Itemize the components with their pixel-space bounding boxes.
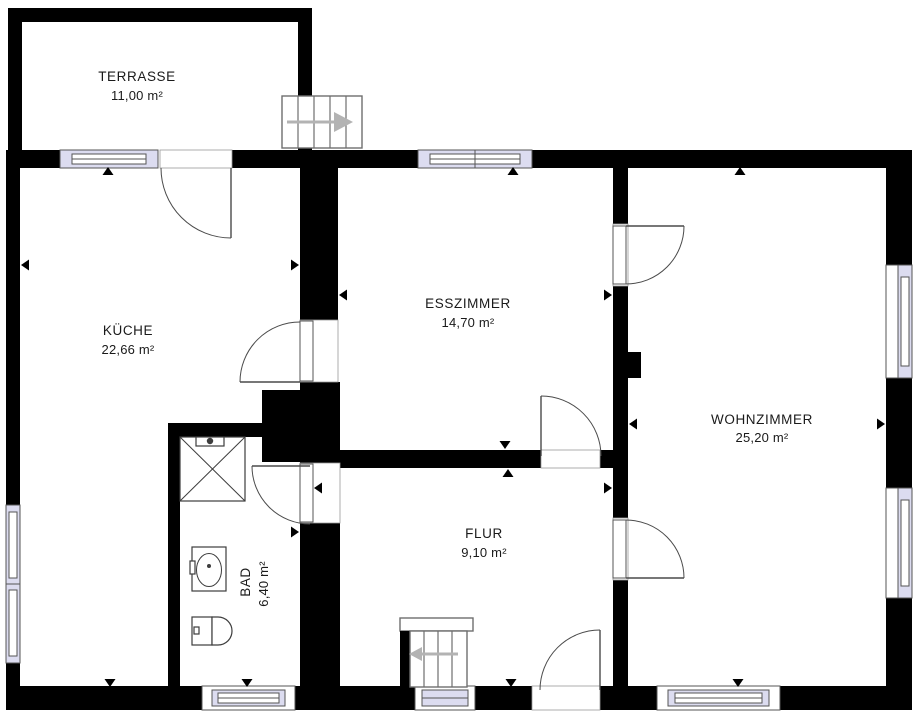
wall-segment (168, 423, 300, 437)
wall-segment (532, 150, 912, 168)
wall-segment (6, 150, 20, 505)
window-kueche-top (60, 150, 158, 168)
marker-up (735, 167, 746, 175)
marker-down (500, 441, 511, 449)
shower-icon (180, 437, 245, 501)
door-kueche-esszimmer (240, 320, 338, 382)
marker-right (604, 290, 612, 301)
floor-plan: TERRASSE 11,00 m² KÜCHE 22,66 m² ESSZIMM… (0, 0, 920, 713)
wall-segment (600, 686, 657, 710)
wall-segment (338, 450, 541, 468)
wall-segment (168, 437, 180, 686)
label-bad: BAD (238, 567, 253, 597)
wall-segment (8, 8, 312, 22)
label-kueche-area: 22,66 m² (102, 342, 155, 357)
wall-pilaster (625, 352, 641, 378)
label-terrasse: TERRASSE (98, 69, 176, 84)
dimension-markers (21, 167, 885, 687)
label-esszimmer: ESSZIMMER (425, 296, 511, 311)
marker-left (629, 419, 637, 430)
wall-segment (886, 378, 912, 488)
label-wohnzimmer: WOHNZIMMER (711, 412, 813, 427)
marker-down (506, 679, 517, 687)
marker-left (339, 290, 347, 301)
marker-right (877, 419, 885, 430)
wall-segment (600, 450, 613, 468)
wall-segment (300, 523, 340, 686)
wall-segment (613, 578, 628, 686)
door-terrasse-kueche (160, 150, 232, 238)
marker-right (291, 260, 299, 271)
window-esszimmer-top (418, 150, 532, 168)
marker-right (604, 483, 612, 494)
window-wohnzimmer-right-upper (886, 265, 912, 378)
door-esszimmer-wohnzimmer (613, 224, 684, 286)
stairs-flur-icon (400, 618, 473, 687)
window-wohnzimmer-bottom (657, 686, 780, 710)
label-wohnzimmer-area: 25,20 m² (736, 430, 789, 445)
wall-segment (300, 168, 338, 320)
label-bad-area: 6,40 m² (256, 561, 271, 607)
marker-down (105, 679, 116, 687)
wall-segment (613, 168, 628, 225)
window-flur-bottom (415, 686, 475, 710)
wall-segment (295, 686, 415, 710)
door-entry (532, 630, 600, 710)
window-bad-bottom (202, 686, 295, 710)
wall-segment (300, 437, 340, 463)
label-kueche: KÜCHE (103, 323, 153, 338)
label-terrasse-area: 11,00 m² (111, 88, 163, 103)
wall-segment (475, 686, 532, 710)
wall-segment (886, 150, 912, 265)
wall-segment (6, 686, 202, 710)
window-kueche-left (6, 505, 20, 663)
marker-up (503, 469, 514, 477)
toilet-icon (192, 617, 232, 645)
door-esszimmer-flur (541, 396, 601, 468)
wall-segment (886, 598, 912, 710)
floor-plan-drawing: TERRASSE 11,00 m² KÜCHE 22,66 m² ESSZIMM… (0, 0, 920, 713)
label-flur-area: 9,10 m² (461, 545, 507, 560)
walls (6, 8, 912, 710)
window-wohnzimmer-right-lower (886, 488, 912, 598)
label-esszimmer-area: 14,70 m² (442, 315, 495, 330)
door-flur-bad (252, 463, 340, 524)
wall-segment (613, 285, 628, 520)
sink-icon (190, 547, 226, 591)
marker-left (21, 260, 29, 271)
wall-segment (232, 150, 418, 168)
door-flur-wohnzimmer (613, 518, 684, 580)
label-flur: FLUR (465, 526, 503, 541)
wall-segment (8, 8, 22, 152)
stairs-terrasse-icon (282, 96, 362, 148)
marker-right (291, 527, 299, 538)
